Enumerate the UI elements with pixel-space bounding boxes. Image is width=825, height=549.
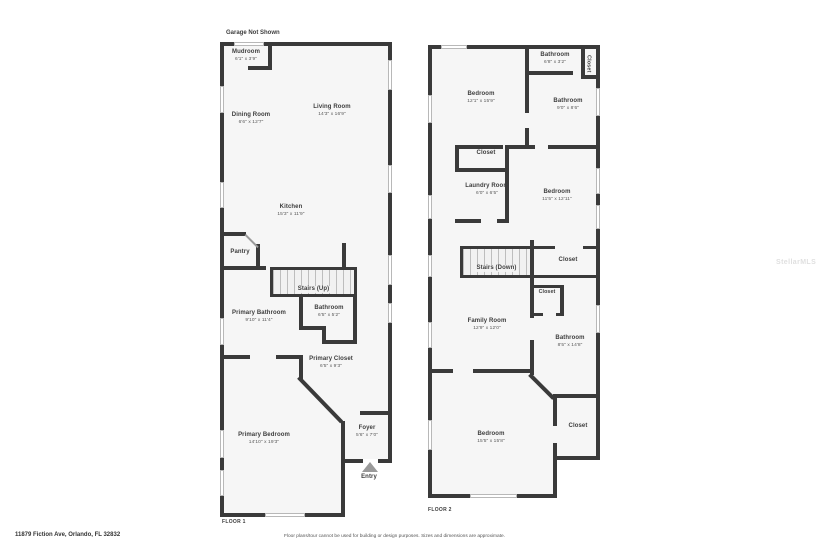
room-dims: 6'6" x 12'7": [221, 120, 281, 126]
room-name: Bathroom: [303, 305, 355, 312]
room-label-closet-small: Closet: [533, 289, 561, 295]
wall: [360, 411, 392, 415]
wall: [220, 232, 246, 236]
room-name: Primary Bedroom: [226, 432, 302, 439]
window-marker: [388, 165, 392, 193]
window-marker: [428, 95, 432, 123]
wall: [460, 246, 533, 249]
room-label-foyer: Foyer 5'6" x 7'0": [346, 425, 388, 438]
window-marker: [388, 255, 392, 285]
wall: [455, 219, 481, 223]
wall: [455, 168, 509, 172]
entry-arrow-icon: [362, 462, 378, 472]
window-marker: [388, 303, 392, 323]
room-name: Bedroom: [450, 91, 512, 98]
window-marker: [441, 45, 467, 49]
room-label-stairs-up: Stairs (Up): [270, 277, 357, 295]
room-label-bathroom-mid: Bathroom 9'0" x 8'6": [542, 98, 594, 111]
window-marker: [428, 255, 432, 277]
room-name: Bathroom: [544, 335, 596, 342]
window-marker: [428, 195, 432, 219]
room-dims: 9'10" x 11'4": [222, 318, 296, 324]
room-label-primary-bathroom: Primary Bathroom 9'10" x 11'4": [222, 310, 296, 323]
floor1-area: [222, 459, 341, 515]
room-label-bathroom-lower: Bathroom 8'5" x 14'8": [544, 335, 596, 348]
room-name: Laundry Room: [455, 183, 519, 190]
room-dims: 5'6" x 7'0": [346, 433, 388, 439]
room-label-closet-mid: Closet: [464, 150, 508, 157]
window-marker: [596, 305, 600, 333]
room-label-closet-top: Closet: [585, 49, 591, 79]
room-dims: 6'5" x 9'3": [300, 364, 362, 370]
room-name: Entry: [352, 474, 386, 481]
window-marker: [220, 86, 224, 113]
room-label-closet-stairs: Closet: [546, 257, 590, 264]
room-name: Closet: [533, 289, 561, 295]
wall: [497, 219, 509, 223]
wall: [388, 42, 392, 463]
room-label-living-room: Living Room 14'3" x 16'9": [300, 104, 364, 117]
room-dims: 11'5" x 12'11": [526, 197, 588, 203]
wall: [533, 246, 555, 249]
room-label-bedroom-mid: Bedroom 11'5" x 12'11": [526, 189, 588, 202]
room-name: Bathroom: [542, 98, 594, 105]
window-marker: [265, 513, 305, 517]
wall: [533, 275, 600, 278]
window-marker: [388, 60, 392, 90]
room-label-laundry-room: Laundry Room 6'0" x 6'5": [455, 183, 519, 196]
wall: [553, 394, 557, 426]
room-name: Bathroom: [529, 52, 581, 59]
wall: [583, 246, 600, 249]
room-label-primary-closet: Primary Closet 6'5" x 9'3": [300, 356, 362, 369]
window-marker: [428, 322, 432, 348]
window-marker: [428, 420, 432, 450]
room-dims: 12'9" x 12'0": [455, 326, 519, 332]
wall: [533, 313, 543, 316]
room-name: Bedroom: [459, 431, 523, 438]
window-marker: [220, 430, 224, 458]
room-dims: 6'8" x 3'2": [529, 60, 581, 66]
watermark: StellarMLS: [776, 259, 816, 266]
room-name: Stairs (Up): [296, 286, 331, 293]
room-dims: 6'1" x 3'9": [222, 57, 270, 63]
window-marker: [234, 42, 264, 46]
wall: [530, 240, 534, 318]
wall: [553, 456, 600, 460]
wall: [428, 369, 453, 373]
room-name: Dining Room: [221, 112, 281, 119]
floor2-area: [430, 456, 553, 494]
wall: [553, 443, 557, 498]
wall: [525, 71, 529, 113]
wall: [220, 266, 266, 270]
window-marker: [596, 205, 600, 229]
room-dims: 6'0" x 6'5": [455, 191, 519, 197]
room-name: Closet: [585, 49, 591, 79]
disclaimer-text: Floor plans/tour cannot be used for buil…: [284, 534, 505, 539]
floor1-tag: FLOOR 1: [222, 519, 246, 525]
room-name: Primary Closet: [300, 356, 362, 363]
room-label-bathroom-f1: Bathroom 6'5" x 5'2": [303, 305, 355, 318]
wall: [460, 275, 533, 278]
room-dims: 9'0" x 8'6": [542, 106, 594, 112]
room-dims: 14'10" x 19'3": [226, 440, 302, 446]
room-dims: 15'3" x 11'9": [260, 212, 322, 218]
window-marker: [220, 470, 224, 496]
window-marker: [596, 168, 600, 194]
wall: [220, 355, 250, 359]
room-dims: 8'5" x 14'8": [544, 343, 596, 349]
wall: [455, 145, 503, 149]
room-label-dining-room: Dining Room 6'6" x 12'7": [221, 112, 281, 125]
window-marker: [596, 88, 600, 116]
room-name: Closet: [464, 150, 508, 157]
room-name: Primary Bathroom: [222, 310, 296, 317]
room-label-bedroom-bottom: Bedroom 15'5" x 15'8": [459, 431, 523, 444]
room-label-primary-bedroom: Primary Bedroom 14'10" x 19'3": [226, 432, 302, 445]
room-label-kitchen: Kitchen 15'3" x 11'9": [260, 204, 322, 217]
room-label-bathroom-top: Bathroom 6'8" x 3'2": [529, 52, 581, 65]
room-dims: 14'3" x 16'9": [300, 112, 364, 118]
room-label-mudroom: Mudroom 6'1" x 3'9": [222, 49, 270, 62]
room-name: Pantry: [222, 249, 258, 256]
room-dims: 12'1" x 15'9": [450, 99, 512, 105]
floorplan-page: Garage Not Shown Mudroom 6'1" x 3'9" Din…: [0, 0, 825, 549]
wall: [341, 421, 345, 517]
wall: [341, 459, 363, 463]
room-label-entry: Entry: [352, 474, 386, 481]
garage-note: Garage Not Shown: [226, 30, 280, 36]
room-label-bedroom-upper: Bedroom 12'1" x 15'9": [450, 91, 512, 104]
wall: [525, 71, 573, 75]
room-name: Mudroom: [222, 49, 270, 56]
room-name: Living Room: [300, 104, 364, 111]
wall: [270, 267, 357, 270]
room-label-family-room: Family Room 12'9" x 12'0": [455, 318, 519, 331]
wall: [548, 145, 600, 149]
room-name: Closet: [546, 257, 590, 264]
room-name: Bedroom: [526, 189, 588, 196]
window-marker: [470, 494, 517, 498]
wall: [378, 459, 392, 463]
room-name: Stairs (Down): [475, 265, 519, 272]
wall: [248, 66, 272, 70]
room-dims: 6'5" x 5'2": [303, 313, 355, 319]
wall: [353, 294, 357, 344]
room-dims: 15'5" x 15'8": [459, 439, 523, 445]
window-marker: [220, 182, 224, 208]
property-address: 11879 Fiction Ave, Orlando, FL 32832: [15, 532, 120, 538]
wall: [473, 369, 534, 373]
room-label-closet-bottom: Closet: [556, 423, 600, 430]
room-label-stairs-down: Stairs (Down): [460, 256, 533, 274]
room-name: Kitchen: [260, 204, 322, 211]
room-label-pantry: Pantry: [222, 249, 258, 256]
room-name: Closet: [556, 423, 600, 430]
room-name: Foyer: [346, 425, 388, 432]
room-name: Family Room: [455, 318, 519, 325]
wall: [342, 243, 346, 269]
wall: [556, 313, 564, 316]
wall: [505, 145, 535, 149]
wall: [553, 394, 600, 398]
floor2-tag: FLOOR 2: [428, 507, 452, 513]
wall: [322, 340, 357, 344]
